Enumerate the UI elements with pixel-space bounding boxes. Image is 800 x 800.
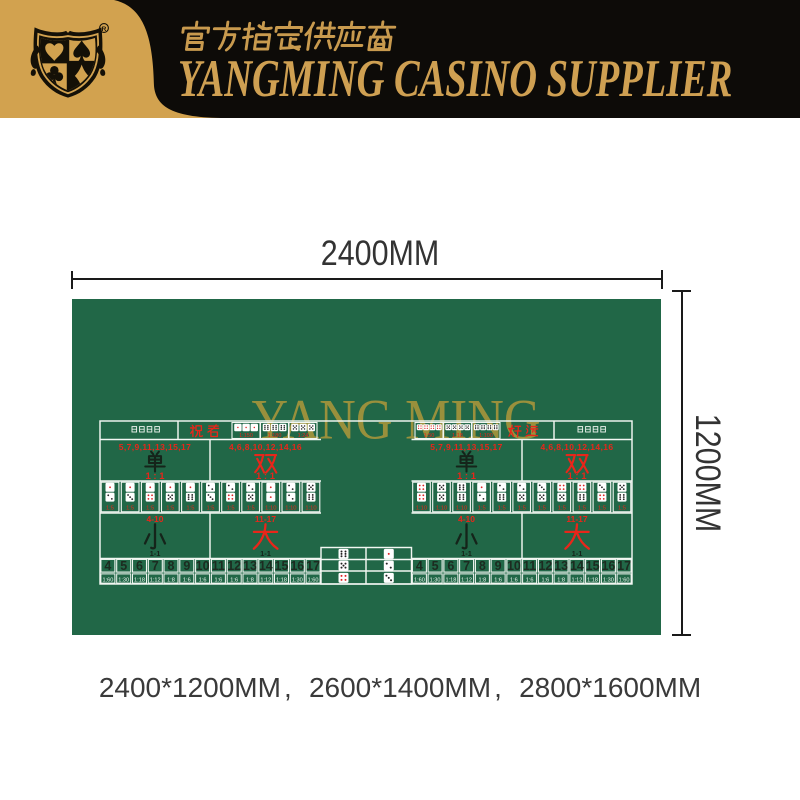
svg-text:1 : 1: 1 : 1 (457, 471, 477, 482)
svg-text:1:5: 1:5 (126, 506, 134, 512)
svg-text:17: 17 (306, 559, 320, 573)
svg-text:1 : 1: 1 : 1 (256, 471, 276, 482)
svg-text:1:150: 1:150 (239, 433, 253, 439)
svg-text:16: 16 (290, 559, 304, 573)
svg-text:1:50: 1:50 (424, 433, 435, 439)
svg-text:5,7,9,11,13,15,17: 5,7,9,11,13,15,17 (119, 442, 192, 452)
svg-text:1:5: 1:5 (478, 506, 486, 512)
svg-text:1:5: 1:5 (538, 506, 546, 512)
svg-text:1:180: 1:180 (268, 433, 282, 439)
svg-text:4,6,8,10,12,14,16: 4,6,8,10,12,14,16 (541, 442, 614, 452)
svg-text:1-1: 1-1 (572, 549, 583, 558)
svg-text:1:10: 1:10 (285, 506, 296, 512)
svg-text:1:6: 1:6 (542, 577, 550, 583)
svg-text:1:24: 1:24 (298, 433, 309, 439)
svg-text:1:10: 1:10 (416, 506, 427, 512)
svg-text:1:5: 1:5 (578, 506, 586, 512)
svg-text:1:6: 1:6 (230, 577, 238, 583)
svg-text:5: 5 (120, 559, 127, 573)
svg-text:4: 4 (416, 559, 423, 573)
svg-text:1:6: 1:6 (199, 577, 207, 583)
svg-text:1:5: 1:5 (518, 506, 526, 512)
svg-text:1:60: 1:60 (102, 577, 113, 583)
svg-text:1:8: 1:8 (246, 577, 254, 583)
svg-text:1:5: 1:5 (498, 506, 506, 512)
svg-text:14: 14 (570, 559, 584, 573)
svg-text:1-1: 1-1 (461, 549, 472, 558)
svg-text:5: 5 (432, 559, 439, 573)
svg-text:4-10: 4-10 (458, 514, 475, 524)
svg-text:11: 11 (523, 559, 536, 573)
svg-text:17: 17 (617, 559, 631, 573)
svg-text:1:18: 1:18 (587, 577, 598, 583)
svg-text:7: 7 (463, 559, 470, 573)
svg-text:10: 10 (507, 559, 521, 573)
svg-text:16: 16 (601, 559, 615, 573)
svg-text:1:12: 1:12 (571, 577, 582, 583)
svg-text:1:100: 1:100 (479, 433, 493, 439)
svg-text:1:18: 1:18 (276, 577, 287, 583)
svg-text:15: 15 (586, 559, 600, 573)
svg-text:1:10: 1:10 (456, 506, 467, 512)
svg-text:1:10: 1:10 (305, 506, 316, 512)
svg-text:1 : 1: 1 : 1 (145, 471, 165, 482)
svg-text:1:10: 1:10 (265, 506, 276, 512)
svg-text:9: 9 (495, 559, 502, 573)
svg-text:14: 14 (259, 559, 273, 573)
svg-text:1:5: 1:5 (186, 506, 194, 512)
svg-text:1:30: 1:30 (292, 577, 303, 583)
svg-text:1:5: 1:5 (206, 506, 214, 512)
svg-text:13: 13 (554, 559, 568, 573)
svg-text:1:12: 1:12 (461, 577, 472, 583)
svg-text:1:5: 1:5 (618, 506, 626, 512)
svg-text:1:18: 1:18 (452, 433, 463, 439)
svg-text:15: 15 (275, 559, 289, 573)
svg-text:1-1: 1-1 (150, 549, 161, 558)
svg-text:1:12: 1:12 (260, 577, 271, 583)
svg-text:1:18: 1:18 (445, 577, 456, 583)
svg-text:9: 9 (183, 559, 190, 573)
svg-text:1:5: 1:5 (106, 506, 114, 512)
svg-text:1:5: 1:5 (598, 506, 606, 512)
svg-text:1:5: 1:5 (558, 506, 566, 512)
svg-text:4,6,8,10,12,14,16: 4,6,8,10,12,14,16 (229, 442, 302, 452)
svg-text:1-1: 1-1 (260, 549, 271, 558)
svg-text:1:6: 1:6 (215, 577, 223, 583)
svg-text:6: 6 (447, 559, 454, 573)
svg-text:1:6: 1:6 (510, 577, 518, 583)
svg-text:1:5: 1:5 (227, 506, 235, 512)
svg-text:1:60: 1:60 (414, 577, 425, 583)
svg-text:1:10: 1:10 (436, 506, 447, 512)
svg-text:1:8: 1:8 (557, 577, 565, 583)
svg-text:4: 4 (104, 559, 111, 573)
svg-text:1:8: 1:8 (479, 577, 487, 583)
svg-text:1:6: 1:6 (183, 577, 191, 583)
svg-text:11: 11 (212, 559, 225, 573)
svg-text:1:12: 1:12 (150, 577, 161, 583)
svg-text:R: R (102, 26, 107, 33)
svg-text:13: 13 (243, 559, 257, 573)
svg-text:1:5: 1:5 (166, 506, 174, 512)
svg-text:7: 7 (152, 559, 159, 573)
svg-text:1:30: 1:30 (603, 577, 614, 583)
svg-text:1:5: 1:5 (146, 506, 154, 512)
svg-text:4-10: 4-10 (146, 514, 163, 524)
svg-text:11-17: 11-17 (255, 514, 277, 524)
svg-text:1 : 1: 1 : 1 (567, 471, 587, 482)
svg-text:12: 12 (538, 559, 552, 573)
svg-text:11-17: 11-17 (566, 514, 588, 524)
svg-text:1:60: 1:60 (619, 577, 630, 583)
svg-text:1:18: 1:18 (134, 577, 145, 583)
svg-text:1:5: 1:5 (247, 506, 255, 512)
svg-text:1:30: 1:30 (118, 577, 129, 583)
svg-text:12: 12 (227, 559, 241, 573)
svg-text:1:6: 1:6 (494, 577, 502, 583)
svg-text:6: 6 (136, 559, 143, 573)
svg-text:1:60: 1:60 (308, 577, 319, 583)
svg-text:8: 8 (168, 559, 175, 573)
svg-text:1:30: 1:30 (430, 577, 441, 583)
svg-text:10: 10 (196, 559, 210, 573)
svg-text:1:6: 1:6 (526, 577, 534, 583)
svg-text:5,7,9,11,13,15,17: 5,7,9,11,13,15,17 (430, 442, 503, 452)
svg-text:1:8: 1:8 (167, 577, 175, 583)
svg-text:8: 8 (479, 559, 486, 573)
